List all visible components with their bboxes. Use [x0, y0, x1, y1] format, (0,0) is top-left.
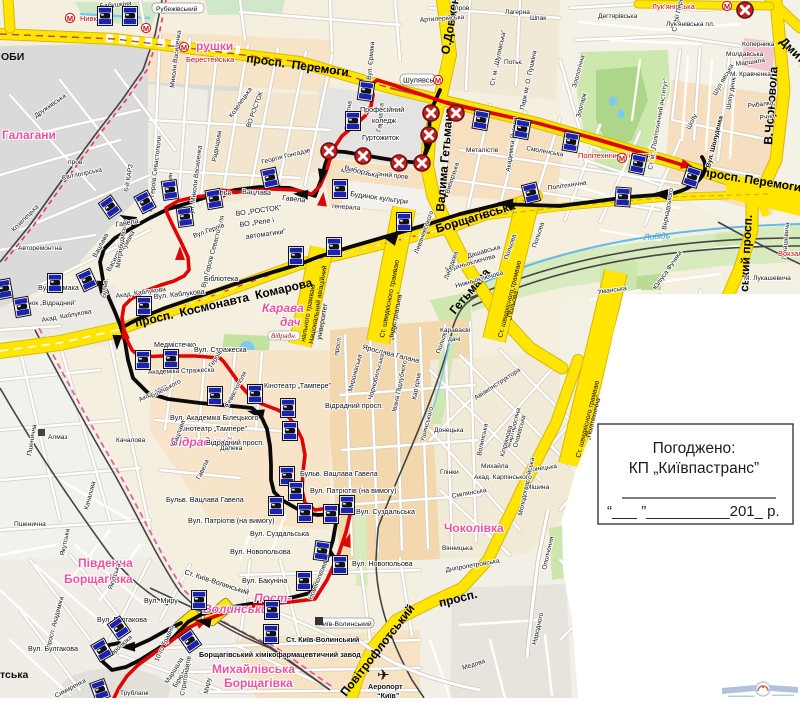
svg-text:Борщагівка: Борщагівка [224, 676, 293, 690]
svg-text:Кінотеатр „Тампере”: Кінотеатр „Тампере” [180, 424, 248, 433]
svg-text:✈: ✈ [377, 667, 390, 684]
svg-text:Кінотеатр „Тампере”: Кінотеатр „Тампере” [264, 381, 332, 390]
svg-text:Вул. Бакуніна: Вул. Бакуніна [242, 576, 287, 585]
svg-text:М. Лукашевича: М. Лукашевича [744, 275, 791, 282]
svg-text:Коперника: Коперника [742, 41, 775, 48]
svg-text:Трублаїні: Трублаїні [120, 689, 149, 697]
svg-text:Михайла: Михайла [481, 462, 509, 470]
svg-text:Відрадн.: Відрадн. [271, 332, 297, 340]
svg-text:тська: тська [0, 669, 29, 681]
svg-text:Донецька: Донецька [434, 427, 464, 434]
svg-text:рушки: рушки [196, 39, 233, 53]
svg-text:Вул. Булгакова: Вул. Булгакова [28, 644, 78, 653]
svg-text:Глінки: Глінки [440, 468, 459, 476]
svg-text:“___ ”__________201_ р.: “___ ”__________201_ р. [607, 503, 780, 520]
svg-text:Пшенична: Пшенична [14, 521, 46, 528]
svg-text:Професійний: Професійний [360, 105, 404, 114]
svg-text:“Київ”: “Київ” [377, 691, 400, 698]
svg-text:КП „Київпастранс”: КП „Київпастранс” [629, 460, 759, 477]
svg-text:Гуртожиток: Гуртожиток [362, 133, 400, 142]
svg-text:Либідь: Либідь [642, 230, 670, 242]
svg-text:Відрадний просп.: Відрадний просп. [325, 401, 383, 410]
svg-text:Лук’янівська пл.: Лук’янівська пл. [666, 20, 715, 28]
svg-text:Рубежівський: Рубежівський [156, 5, 198, 13]
svg-text:Борщагівка: Борщагівка [64, 572, 133, 586]
svg-text:Караваєві: Караваєві [440, 326, 471, 334]
svg-text:Вул. Суздальська: Вул. Суздальська [250, 529, 309, 538]
svg-text:Медмістечко: Медмістечко [154, 340, 196, 349]
svg-text:Бульв. Вацлава Гавела: Бульв. Вацлава Гавела [166, 495, 244, 504]
svg-text:ОБИ: ОБИ [1, 51, 24, 63]
svg-text:Лагерна: Лагерна [505, 9, 530, 16]
svg-text:Галагани: Галагани [2, 128, 56, 142]
svg-text:Качалова: Качалова [116, 437, 145, 444]
svg-text:дачі: дачі [448, 335, 461, 343]
svg-text:Лук’янівська: Лук’янівська [652, 2, 696, 11]
svg-text:Чоколівка: Чоколівка [444, 521, 504, 535]
svg-text:Ст. Київ-Волинський: Ст. Київ-Волинський [286, 635, 359, 644]
svg-text:М. Кравченка: М. Кравченка [730, 71, 771, 78]
svg-text:Вокзал: Вокзал [778, 249, 800, 258]
svg-text:Авторемонтна: Авторемонтна [18, 245, 62, 252]
svg-text:Борщагівський хімікофармацевти: Борщагівський хімікофармацевтичний завод [199, 650, 361, 659]
svg-text:Вул. Патріотів (на вимогу): Вул. Патріотів (на вимогу) [188, 516, 275, 525]
svg-text:коледж: коледж [372, 116, 396, 125]
svg-text:Погоджено:: Погоджено: [653, 440, 736, 457]
svg-text:Карава: Карава [262, 301, 304, 315]
svg-text:Вінницька: Вінницька [442, 544, 473, 552]
svg-text:Дегтярівська: Дегтярівська [598, 12, 637, 20]
svg-text:Вул. Суздальська: Вул. Суздальська [356, 507, 415, 516]
svg-text:пров.: пров. [455, 5, 471, 12]
svg-text:Михайлівська: Михайлівська [212, 662, 295, 676]
svg-text:Вул. Миру: Вул. Миру [144, 596, 178, 605]
svg-text:Алмаз: Алмаз [48, 434, 67, 441]
svg-text:Київ-Волинський: Київ-Волинський [319, 620, 372, 628]
svg-text:Бульв. Вацлава Гавела: Бульв. Вацлава Гавела [300, 469, 378, 478]
svg-text:Вул. Новопольова: Вул. Новопольова [352, 559, 413, 568]
svg-text:Потьє: Потьє [504, 59, 523, 66]
svg-text:Шпак: Шпак [530, 15, 546, 22]
svg-text:пров.: пров. [68, 159, 84, 166]
svg-text:Вул. Патріотів (на вимогу): Вул. Патріотів (на вимогу) [310, 486, 397, 495]
svg-text:Бібліотека: Бібліотека [204, 274, 238, 283]
svg-text:Південна: Південна [78, 556, 133, 570]
svg-text:Вул. Новопольова: Вул. Новопольова [230, 547, 291, 556]
svg-text:Берестейська: Берестейська [186, 55, 235, 64]
svg-text:Металістів: Металістів [466, 146, 499, 154]
svg-text:дач: дач [280, 315, 301, 329]
svg-text:Акад. Карпінського: Акад. Карпінського [474, 473, 532, 481]
svg-text:Далека: Далека [220, 445, 243, 452]
